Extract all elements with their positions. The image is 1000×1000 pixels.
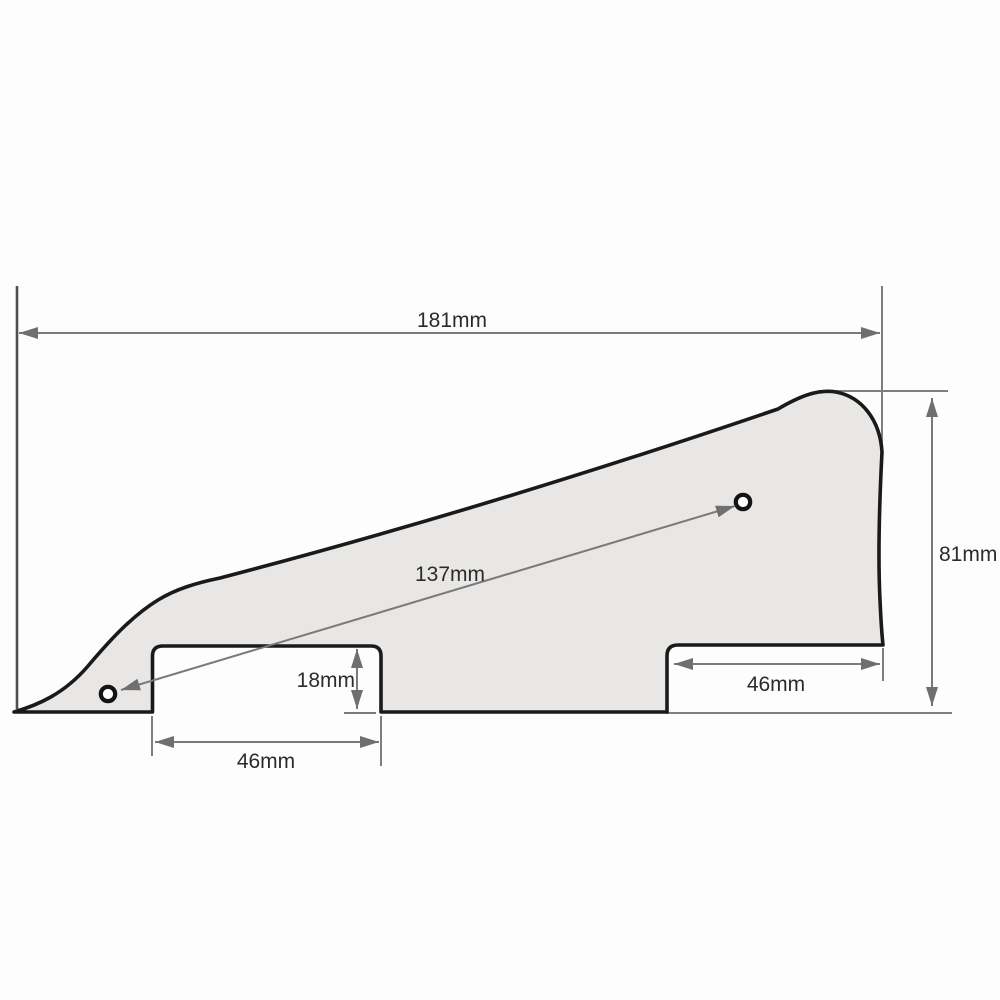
dimension-drawing-canvas: 181mm 81mm 137mm 18mm 46mm 46mm [0,0,1000,1000]
dimension-overall-width: 181mm [19,309,880,333]
dim-label-left-cutout-width: 46mm [237,750,295,773]
dimension-left-cutout-width: 46mm [155,742,379,773]
screw-hole-left [101,687,115,701]
dimension-overall-height: 81mm [932,398,997,706]
dimension-cutout-depth: 18mm [297,649,376,713]
screw-hole-right [736,495,750,509]
dimension-right-cutout-width: 46mm [674,664,880,696]
dim-label-overall-height: 81mm [939,543,997,566]
dim-label-overall-width: 181mm [417,309,487,332]
dim-label-right-cutout-width: 46mm [747,673,805,696]
dim-label-cutout-depth: 18mm [297,669,355,692]
dim-label-hole-spacing: 137mm [415,563,485,586]
